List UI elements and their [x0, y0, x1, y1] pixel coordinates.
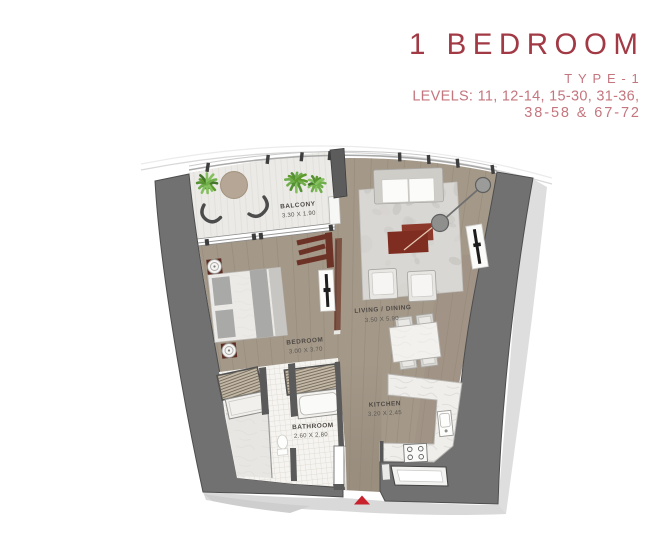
- svg-text:TYPE-1: TYPE-1: [564, 71, 644, 86]
- svg-text:LEVELS: 11, 12-14, 15-30, 31-3: LEVELS: 11, 12-14, 15-30, 31-36,: [412, 89, 639, 105]
- svg-text:1 BEDROOM: 1 BEDROOM: [409, 28, 645, 61]
- svg-text:38-58 & 67-72: 38-58 & 67-72: [524, 105, 641, 121]
